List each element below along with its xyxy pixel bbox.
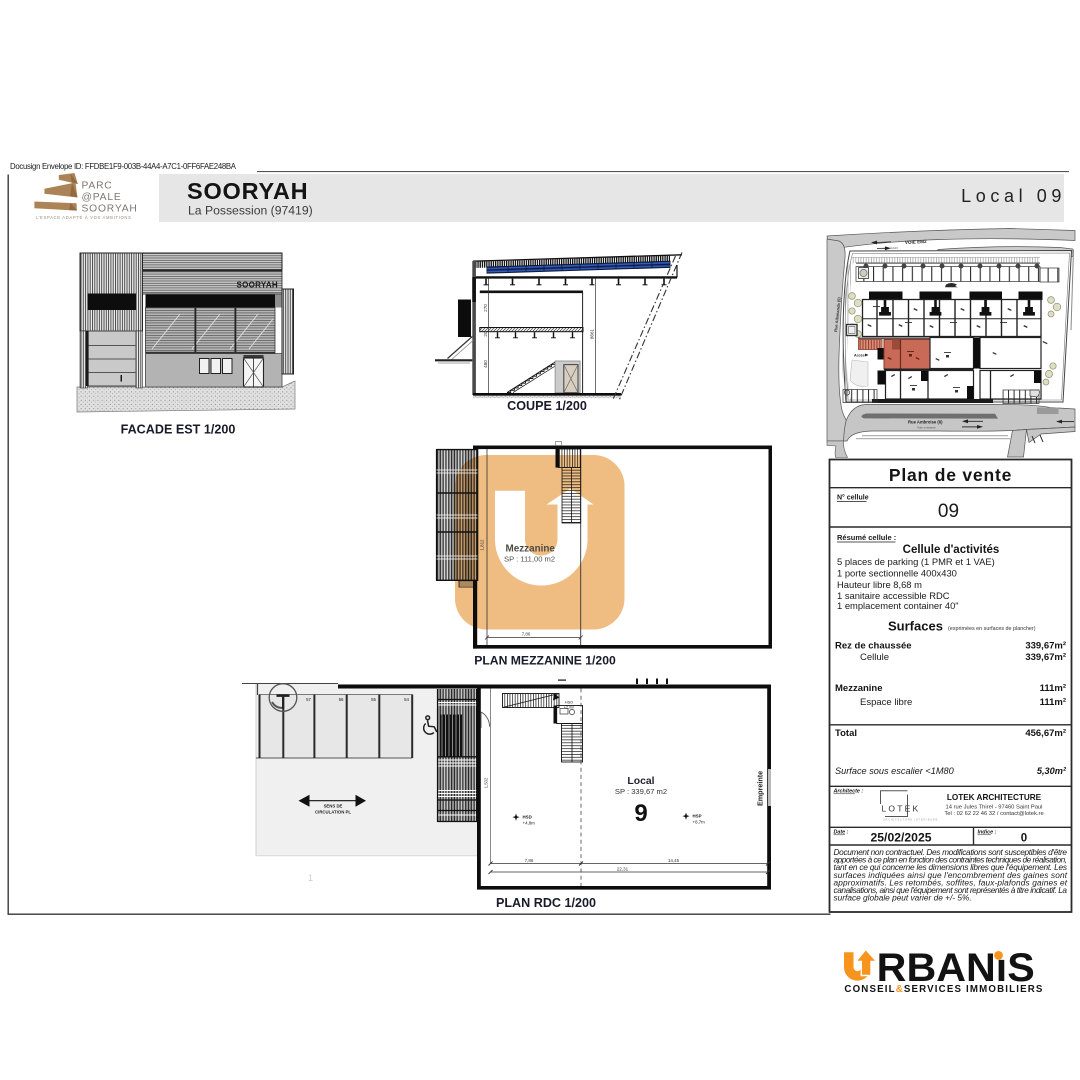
- svg-text:22,31: 22,31: [617, 866, 629, 871]
- svg-text:55: 55: [371, 697, 376, 702]
- svg-text:1 porte sectionnelle 400x430: 1 porte sectionnelle 400x430: [837, 567, 957, 578]
- svg-text:111m²: 111m²: [1040, 697, 1066, 708]
- svg-text:456,67m²: 456,67m²: [1025, 728, 1066, 739]
- svg-text:0: 0: [1021, 832, 1027, 844]
- svg-text:PLAN RDC 1/200: PLAN RDC 1/200: [496, 896, 596, 910]
- svg-text:56: 56: [339, 697, 344, 702]
- svg-text:Local: Local: [627, 776, 654, 787]
- svg-text:Hauteur libre 8,68 m: Hauteur libre 8,68 m: [837, 579, 922, 590]
- svg-text:HSD: HSD: [523, 815, 532, 820]
- svg-text:COUPE 1/200: COUPE 1/200: [507, 399, 587, 413]
- svg-text:PARC: PARC: [82, 181, 113, 192]
- svg-text:480: 480: [483, 360, 488, 368]
- svg-text:+8,7m: +8,7m: [693, 820, 706, 825]
- svg-text:CONSEIL&SERVICES IMMOBILIERS: CONSEIL&SERVICES IMMOBILIERS: [844, 984, 1043, 995]
- svg-text:surface globale peut varier de: surface globale peut varier de +/- 5%.: [834, 893, 972, 903]
- svg-text:FACADE EST 1/200: FACADE EST 1/200: [121, 423, 236, 437]
- svg-text:HSP: HSP: [693, 814, 702, 819]
- svg-text:Docusign Envelope ID: FFDBE1F9: Docusign Envelope ID: FFDBE1F9-003B-44A4…: [10, 162, 237, 171]
- svg-text:@PALE: @PALE: [82, 192, 122, 203]
- svg-text:1,812: 1,812: [480, 539, 485, 551]
- svg-text:LOTEK: LOTEK: [882, 804, 921, 814]
- svg-text:Local 09: Local 09: [961, 186, 1066, 206]
- svg-text:25/02/2025: 25/02/2025: [871, 830, 932, 844]
- svg-text:Mezzanine: Mezzanine: [835, 683, 883, 694]
- svg-text:SP : 111,00 m2: SP : 111,00 m2: [504, 555, 555, 564]
- svg-text:Voie existante: Voie existante: [917, 425, 936, 429]
- svg-text:1,502: 1,502: [483, 777, 488, 788]
- svg-text:7,86: 7,86: [525, 858, 534, 863]
- svg-text:339,67m²: 339,67m²: [1025, 652, 1066, 663]
- svg-text:Tel : 02 62 22 46 32 / contact: Tel : 02 62 22 46 32 / contact@lotek.re: [944, 811, 1043, 817]
- svg-text:Total: Total: [835, 728, 857, 739]
- svg-text:LOTEK ARCHITECTURE: LOTEK ARCHITECTURE: [947, 793, 1042, 802]
- svg-text:Mezzanine: Mezzanine: [506, 544, 556, 555]
- svg-text:La Possession (97419): La Possession (97419): [188, 204, 313, 218]
- svg-text:111m²: 111m²: [1040, 683, 1066, 694]
- svg-text:339,67m²: 339,67m²: [1025, 641, 1066, 652]
- svg-text:54: 54: [404, 697, 409, 702]
- svg-text:SOORYAH: SOORYAH: [82, 204, 138, 215]
- svg-text:1 emplacement container 40": 1 emplacement container 40": [837, 600, 959, 611]
- svg-text:Rez de chaussée: Rez de chaussée: [835, 641, 912, 652]
- svg-text:Accès: Accès: [854, 354, 865, 358]
- svg-text:57: 57: [306, 697, 311, 702]
- svg-text:L'ESPACE ADAPTÉ À VOS AMBITION: L'ESPACE ADAPTÉ À VOS AMBITIONS: [36, 215, 132, 220]
- svg-text:(exprimées en surfaces de plan: (exprimées en surfaces de plancher): [948, 626, 1036, 632]
- svg-text:N° cellule: N° cellule: [837, 494, 869, 502]
- svg-text:Cellule: Cellule: [860, 652, 889, 663]
- svg-text:1: 1: [308, 873, 313, 883]
- svg-text:Plan de vente: Plan de vente: [889, 465, 1012, 485]
- svg-text:SOORYAH: SOORYAH: [236, 281, 278, 290]
- svg-text:09: 09: [938, 501, 959, 522]
- svg-text:14,45: 14,45: [668, 858, 680, 863]
- svg-text:Espace libre: Espace libre: [860, 697, 912, 708]
- svg-text:+4,8m: +4,8m: [523, 821, 536, 826]
- svg-text:Surfaces: Surfaces: [888, 619, 943, 634]
- svg-text:Empreinte: Empreinte: [756, 771, 765, 806]
- svg-text:CIRCULATION PL: CIRCULATION PL: [315, 810, 351, 815]
- svg-text:ARCHITECTURE INTERIEURE: ARCHITECTURE INTERIEURE: [883, 818, 938, 822]
- svg-text:HSO: HSO: [565, 701, 573, 705]
- svg-text:8661: 8661: [590, 328, 595, 339]
- svg-text:SOORYAH: SOORYAH: [187, 178, 308, 204]
- svg-text:+2,0m: +2,0m: [564, 706, 575, 710]
- svg-text:Cellule d'activités: Cellule d'activités: [903, 544, 1000, 556]
- svg-text:7,86: 7,86: [522, 632, 531, 637]
- svg-text:20: 20: [483, 331, 488, 337]
- svg-text:270: 270: [483, 304, 488, 312]
- svg-text:5,30m²: 5,30m²: [1037, 766, 1067, 776]
- svg-text:Rue Ambroise (6): Rue Ambroise (6): [908, 419, 943, 424]
- svg-text:9: 9: [634, 800, 647, 827]
- svg-text:14 rue Jules Thirel - 97460 Sa: 14 rue Jules Thirel - 97460 Saint Paul: [946, 805, 1043, 811]
- svg-text:Résumé cellule :: Résumé cellule :: [837, 533, 896, 542]
- svg-text:Surface sous escalier <1M80: Surface sous escalier <1M80: [835, 766, 955, 776]
- svg-text:SENS DE: SENS DE: [324, 804, 343, 809]
- svg-text:SP : 339,67 m2: SP : 339,67 m2: [615, 787, 667, 796]
- svg-text:5 places de parking (1 PMR et: 5 places de parking (1 PMR et 1 VAE): [837, 556, 995, 567]
- svg-text:PLAN MEZZANINE 1/200: PLAN MEZZANINE 1/200: [474, 654, 616, 668]
